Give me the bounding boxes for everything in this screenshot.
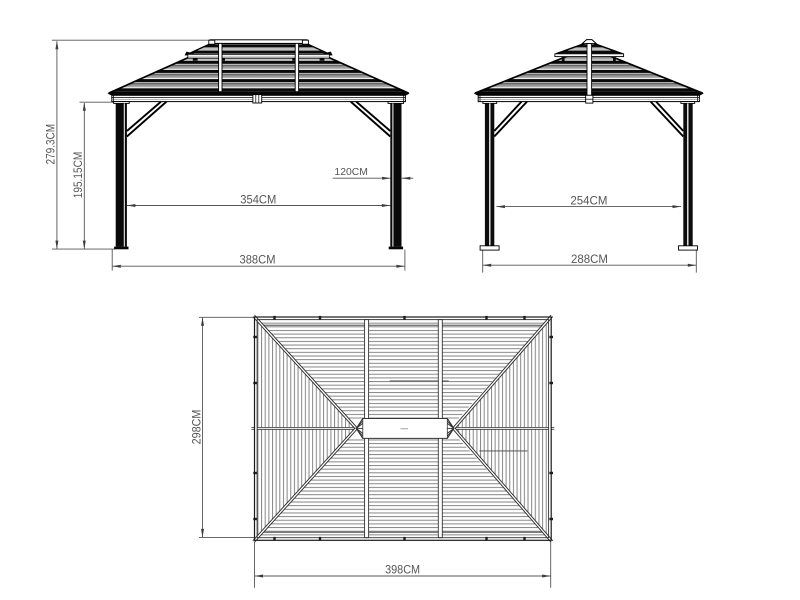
svg-text:398CM: 398CM: [385, 562, 420, 576]
svg-text:354CM: 354CM: [240, 192, 276, 206]
svg-text:120CM: 120CM: [334, 167, 368, 178]
svg-text:298CM: 298CM: [189, 410, 203, 445]
svg-text:288CM: 288CM: [571, 252, 608, 266]
svg-text:388CM: 388CM: [240, 253, 276, 267]
svg-text:279.3CM: 279.3CM: [44, 124, 58, 165]
svg-text:195.15CM: 195.15CM: [71, 152, 85, 199]
svg-text:254CM: 254CM: [570, 193, 607, 207]
